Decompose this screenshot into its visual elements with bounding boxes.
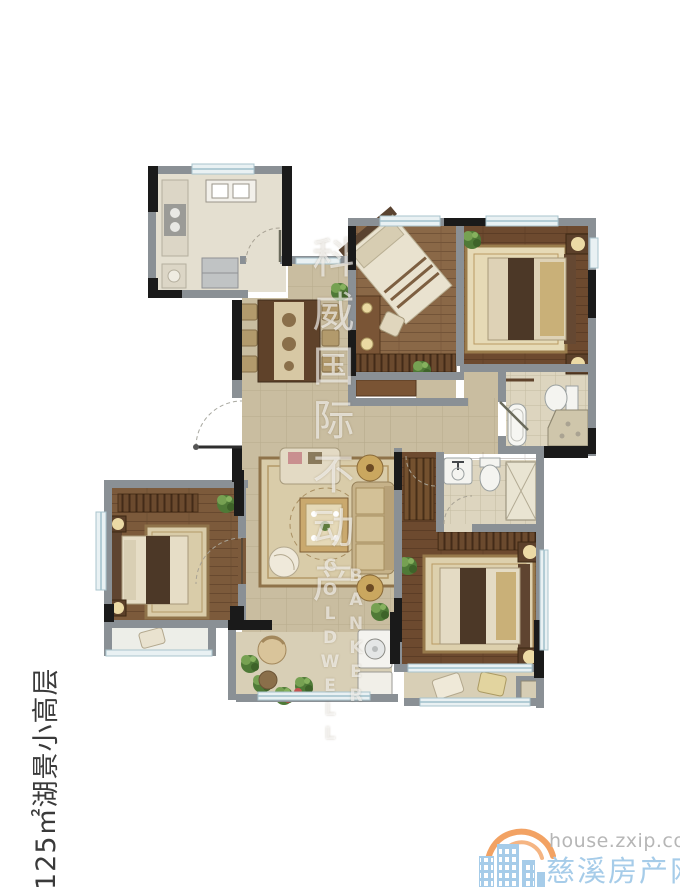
sofa-backrest <box>384 486 394 570</box>
dining-chair <box>322 330 339 346</box>
lamp-glow <box>571 237 585 251</box>
wall-segment <box>104 620 246 628</box>
closet <box>356 380 416 396</box>
dining-chair <box>322 356 339 372</box>
table-dot <box>311 511 317 517</box>
floorplan-svg <box>0 0 680 895</box>
burner <box>170 222 180 232</box>
wall-black <box>104 604 114 622</box>
logo-building-windows <box>480 858 493 886</box>
desk-lamp <box>361 338 373 350</box>
dining-chair <box>240 304 257 320</box>
sink-bowl <box>233 184 249 198</box>
closet-hatch <box>404 458 434 520</box>
stool <box>259 671 277 689</box>
wall-segment <box>498 368 506 402</box>
cabinet-knob <box>168 270 180 282</box>
bed-runner <box>460 568 486 644</box>
wall-black <box>228 620 272 630</box>
table-dot <box>333 535 339 541</box>
plant <box>463 231 481 249</box>
pillow <box>288 452 302 464</box>
dining-chair <box>240 330 257 346</box>
side-table-center <box>366 464 374 472</box>
lamp-glow <box>112 518 124 530</box>
wall-black <box>390 612 400 664</box>
lamp-glow <box>523 545 537 559</box>
table-decor <box>284 361 294 371</box>
tile-texture <box>348 398 498 454</box>
sink-bowl <box>212 184 228 198</box>
bed-pillows <box>124 540 136 600</box>
window <box>106 650 212 656</box>
wall-segment <box>228 628 236 700</box>
bed-pillows <box>540 262 564 336</box>
washer-drum-center <box>372 646 378 652</box>
bed-runner <box>508 258 534 340</box>
wall-black <box>148 290 182 298</box>
plant <box>241 655 259 673</box>
table-plant <box>320 521 330 531</box>
wall-black <box>348 330 356 376</box>
wall-black <box>544 446 588 458</box>
desk-lamp <box>362 303 372 313</box>
side-table-center <box>366 584 374 592</box>
wall-black <box>234 470 244 516</box>
shower-pebble <box>560 434 565 439</box>
table-dot <box>333 511 339 517</box>
logo-building-windows <box>499 847 517 886</box>
wall-segment <box>348 398 468 406</box>
dining-chair <box>240 356 257 372</box>
toilet-tank <box>566 386 578 410</box>
wall-black <box>282 166 292 266</box>
wall-black <box>394 452 402 490</box>
wall-segment <box>460 364 596 372</box>
window <box>296 258 340 264</box>
wall-black <box>444 218 488 226</box>
wardrobe-hatch <box>356 354 456 372</box>
toilet-bowl <box>545 385 567 411</box>
table-dot <box>311 535 317 541</box>
bed-runner <box>146 536 170 604</box>
wall-segment <box>348 372 464 380</box>
wall-black <box>232 300 242 380</box>
hall-niche-floor <box>416 380 456 398</box>
burner <box>170 208 180 218</box>
wall-black <box>588 270 596 318</box>
headboard <box>112 532 122 608</box>
wall-black <box>348 226 356 270</box>
plant <box>331 283 349 301</box>
floorplan-image: 125㎡湖景小高层 科威国际不动产 COLDWELL BANKER house.… <box>0 0 680 895</box>
dining-chair <box>322 304 339 320</box>
wall-black <box>230 606 244 620</box>
table-decor <box>282 337 296 351</box>
shower-pebble <box>566 422 571 427</box>
ottoman <box>269 547 299 577</box>
door-hinge <box>193 444 199 450</box>
window <box>590 238 598 268</box>
wall-segment <box>436 452 444 532</box>
bathroom2-door-gap <box>444 524 472 532</box>
bed-pillows <box>496 572 516 640</box>
wall-black <box>588 428 596 454</box>
toilet-bowl <box>480 465 500 491</box>
pillow <box>308 452 322 464</box>
logo-building <box>537 872 545 887</box>
sofa-cushion <box>356 544 384 570</box>
logo-building-windows <box>523 862 534 886</box>
wall-segment <box>104 480 248 488</box>
entry-door-gap <box>232 398 242 446</box>
wardrobe-hatch <box>118 494 198 512</box>
site-logo-icon <box>479 832 553 887</box>
shower-pebble <box>576 432 581 437</box>
sofa-cushion <box>356 516 384 542</box>
wall-black <box>148 166 158 212</box>
plant <box>371 603 389 621</box>
table-decor <box>282 313 296 327</box>
kitchen-door-gap <box>246 256 280 264</box>
plant <box>217 495 235 513</box>
wall-segment <box>456 226 464 366</box>
sofa-cushion <box>356 488 384 514</box>
